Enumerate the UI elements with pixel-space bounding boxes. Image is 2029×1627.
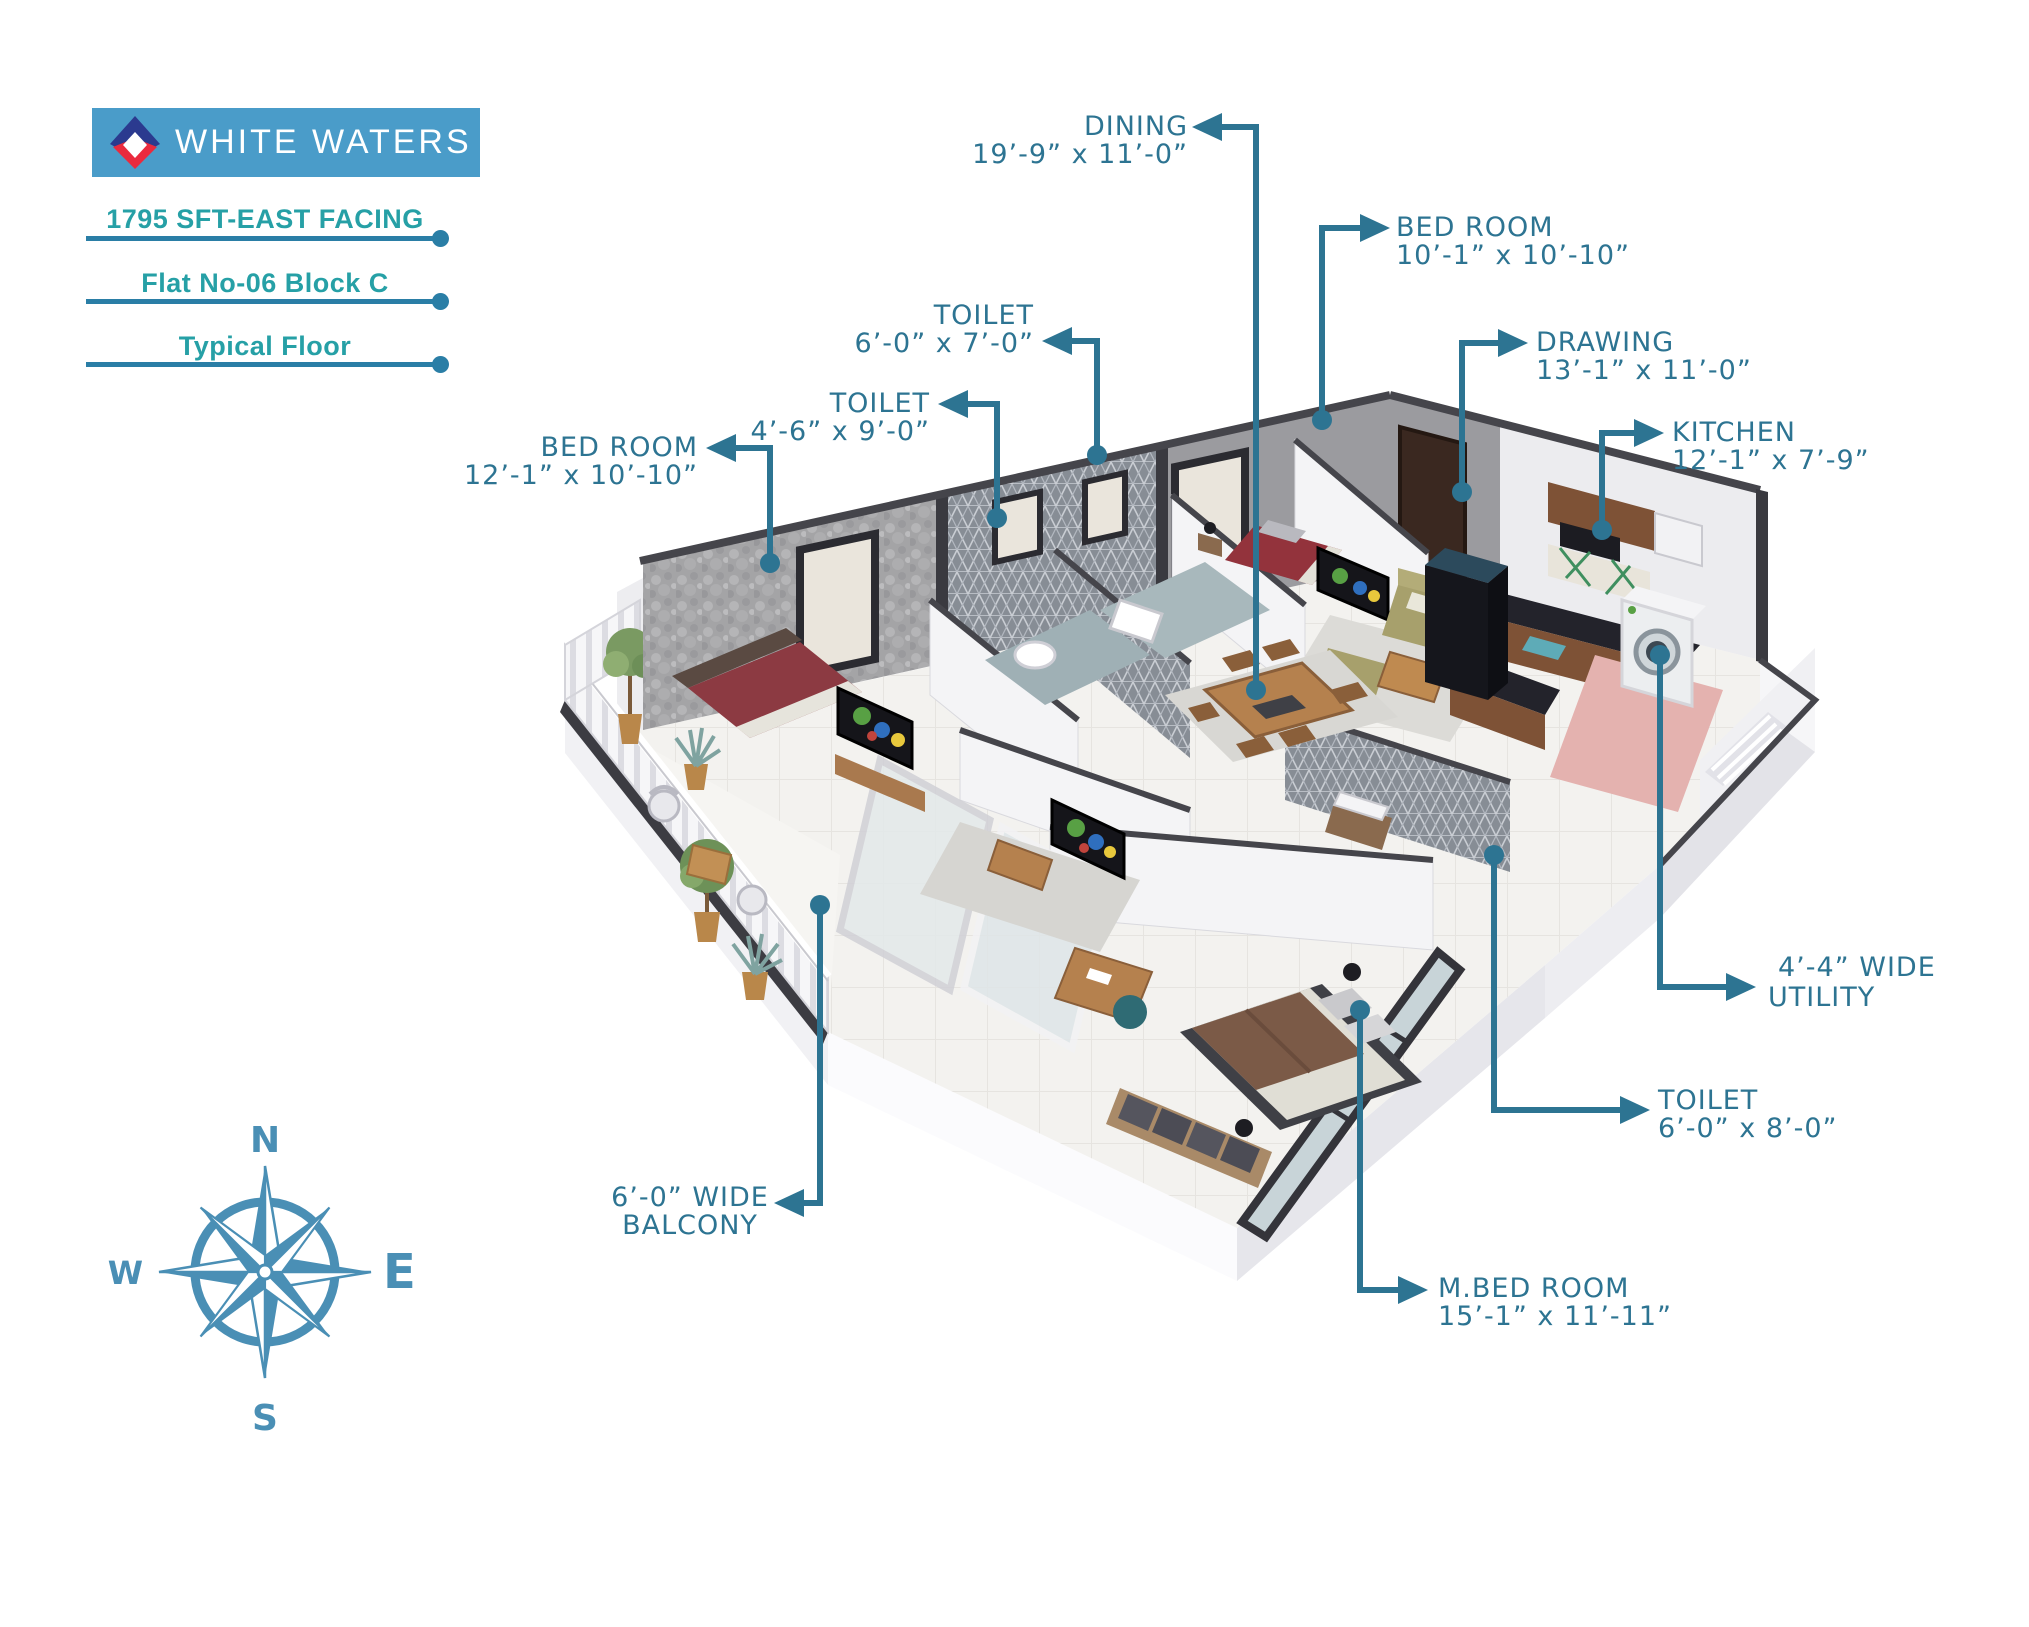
compass-east-label: E — [383, 1244, 416, 1300]
label-utility-name: UTILITY — [1768, 982, 1875, 1013]
master-lamp-1 — [1343, 963, 1361, 981]
label-bedroom-left-dims: 12’-1” x 10’-10” — [464, 460, 698, 491]
compass-west-label: W — [108, 1254, 143, 1292]
label-dining-name: DINING — [1084, 111, 1188, 142]
label-bedroom-top-name: BED ROOM — [1396, 212, 1554, 243]
compass-north-label: N — [250, 1120, 280, 1161]
label-toilet-1-name: TOILET — [933, 300, 1034, 331]
master-lamp-2 — [1235, 1119, 1253, 1137]
toilet-wc — [1015, 642, 1055, 668]
label-toilet-3-dims: 6’-0” x 8’-0” — [1658, 1113, 1837, 1144]
compass-south-label: S — [252, 1398, 278, 1439]
label-toilet-1-dims: 6’-0” x 7’-0” — [855, 328, 1034, 359]
label-toilet-2-dims: 4’-6” x 9’-0” — [751, 416, 930, 447]
label-master-bedroom-name: M.BED ROOM — [1438, 1273, 1629, 1304]
compass-rose: N S W E — [108, 1120, 416, 1439]
label-toilet-3-name: TOILET — [1657, 1085, 1758, 1116]
floorplan-canvas: DINING 19’-9” x 11’-0” BED ROOM 10’-1” x… — [0, 0, 2029, 1627]
label-bedroom-left-name: BED ROOM — [540, 432, 698, 463]
balcony-chair-2 — [738, 886, 766, 914]
balcony-chair — [649, 787, 679, 821]
label-balcony-name: BALCONY — [622, 1210, 758, 1241]
label-balcony-dims: 6’-0” WIDE — [611, 1182, 769, 1213]
master-desk-chair — [1113, 995, 1147, 1029]
fridge — [1425, 548, 1508, 700]
bedside-lamp-top — [1204, 522, 1216, 534]
label-dining-dims: 19’-9” x 11’-0” — [972, 139, 1188, 170]
label-toilet-2-name: TOILET — [829, 388, 930, 419]
label-drawing-name: DRAWING — [1536, 327, 1674, 358]
label-bedroom-top: BED ROOM 10’-1” x 10’-10” — [1312, 212, 1630, 430]
window-toilet-2 — [1085, 473, 1125, 542]
label-master-bedroom-dims: 15’-1” x 11’-11” — [1438, 1301, 1672, 1332]
page: { "brand": { "name": "WHITE WATERS", "ba… — [0, 0, 2029, 1627]
label-drawing-dims: 13’-1” x 11’-0” — [1536, 355, 1752, 386]
label-bedroom-top-dims: 10’-1” x 10’-10” — [1396, 240, 1630, 271]
label-kitchen-name: KITCHEN — [1672, 417, 1796, 448]
label-utility-dims: 4’-4” WIDE — [1778, 952, 1936, 983]
window-toilet-1 — [995, 492, 1040, 562]
floorplan-render — [560, 395, 1815, 1281]
label-kitchen-dims: 12’-1” x 7’-9” — [1672, 445, 1870, 476]
